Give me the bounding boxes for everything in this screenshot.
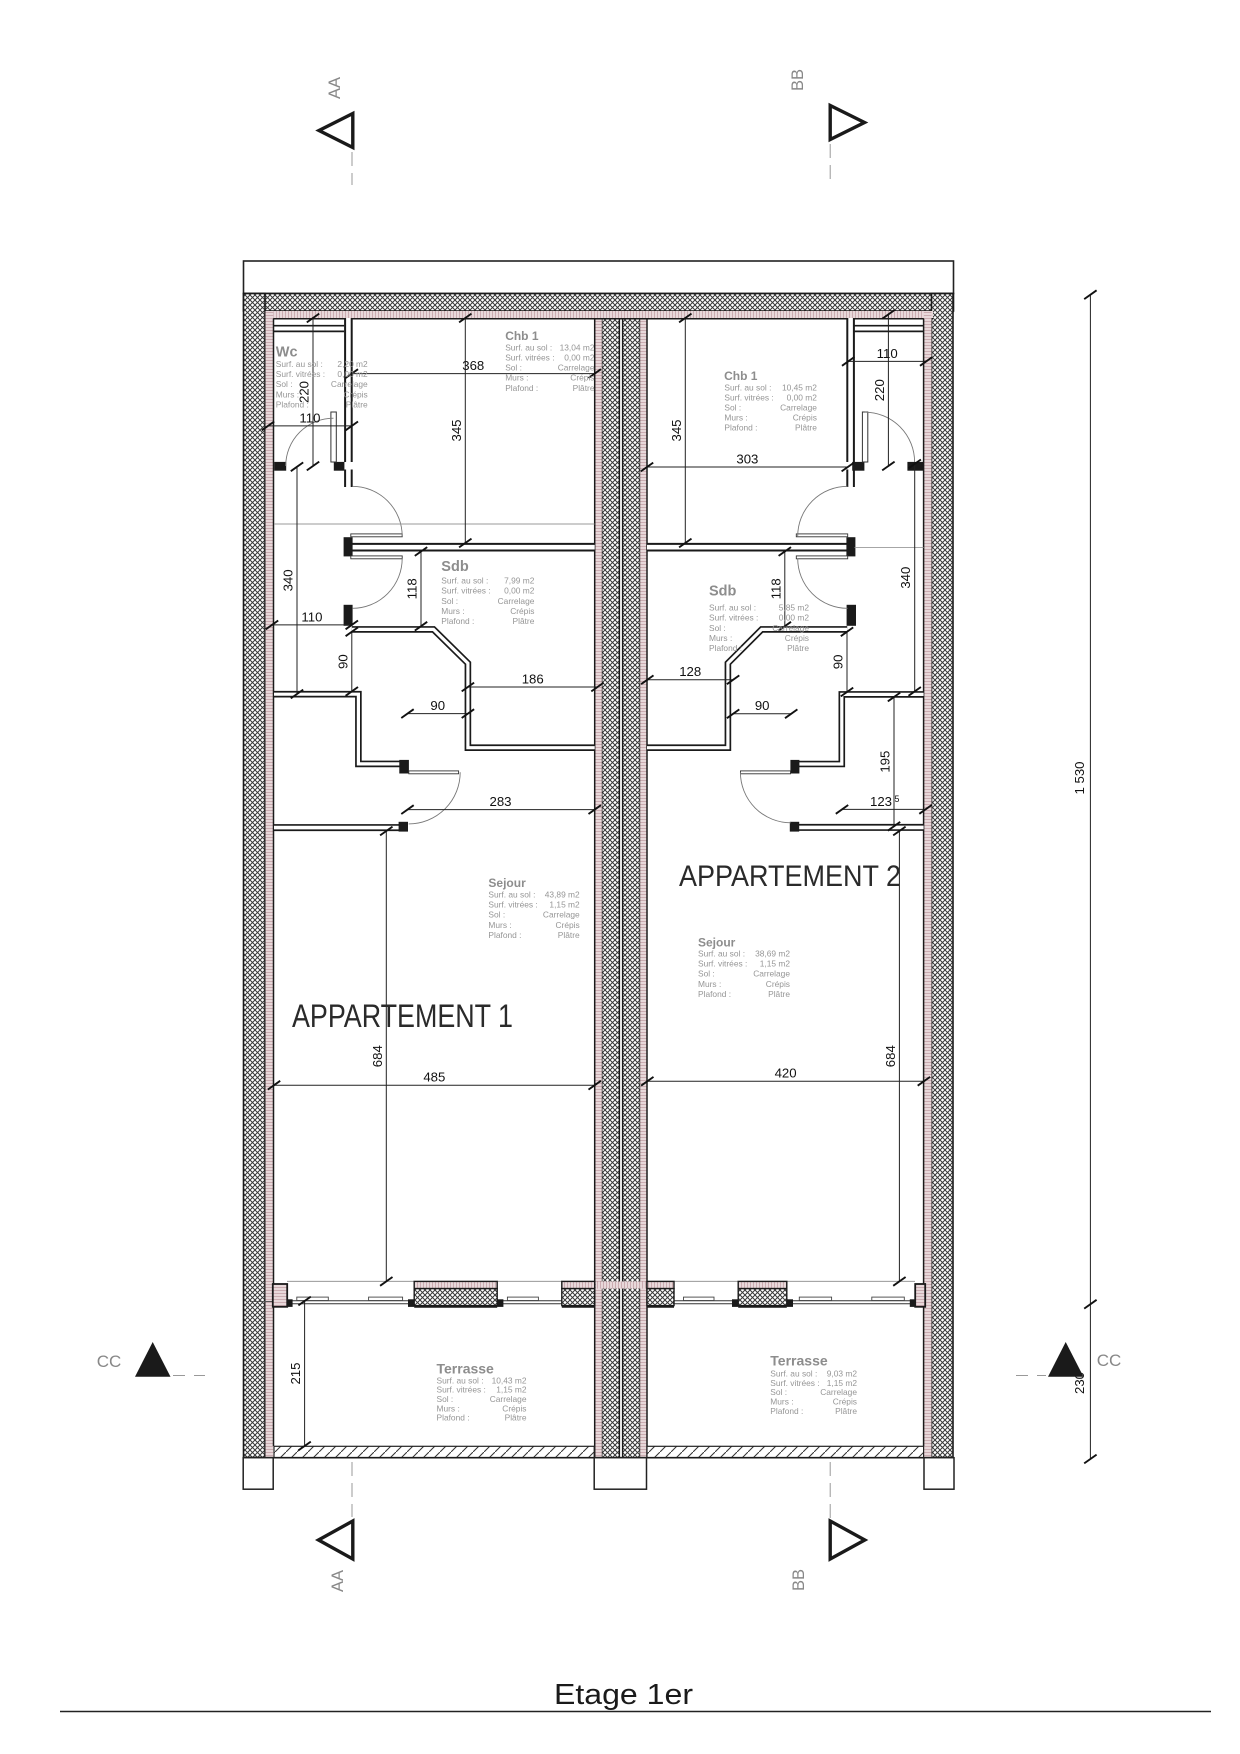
svg-text:Surf. vitrées :: Surf. vitrées : <box>698 959 747 969</box>
svg-text:1,15 m2: 1,15 m2 <box>760 959 791 969</box>
svg-text:Sol :: Sol : <box>505 363 522 373</box>
svg-text:Sejour: Sejour <box>698 935 736 949</box>
svg-text:220: 220 <box>872 379 887 401</box>
svg-text:BB: BB <box>789 69 807 91</box>
svg-text:Sol :: Sol : <box>709 623 726 633</box>
svg-text:Crépis: Crépis <box>343 389 367 399</box>
svg-text:Sol :: Sol : <box>724 402 741 412</box>
svg-text:0,00 m2: 0,00 m2 <box>337 369 368 379</box>
svg-text:0,00 m2: 0,00 m2 <box>564 352 595 362</box>
svg-text:Plâtre: Plâtre <box>558 930 580 940</box>
svg-text:Carrelage: Carrelage <box>558 363 595 373</box>
svg-text:Murs :: Murs : <box>276 389 299 399</box>
svg-text:Surf. vitrées :: Surf. vitrées : <box>488 900 537 910</box>
svg-text:110: 110 <box>299 410 320 425</box>
svg-text:110: 110 <box>301 609 322 624</box>
svg-text:118: 118 <box>405 578 420 599</box>
svg-text:Surf. vitrées :: Surf. vitrées : <box>505 352 554 362</box>
svg-text:Plâtre: Plâtre <box>787 643 809 653</box>
svg-text:BB: BB <box>790 1569 808 1591</box>
svg-text:420: 420 <box>775 1066 797 1081</box>
svg-text:283: 283 <box>489 794 511 809</box>
svg-text:Crépis: Crépis <box>766 979 790 989</box>
svg-text:90: 90 <box>831 655 846 670</box>
svg-text:Crépis: Crépis <box>793 412 817 422</box>
svg-text:186: 186 <box>522 671 544 686</box>
svg-text:AA: AA <box>326 77 344 99</box>
svg-text:Surf. au sol :: Surf. au sol : <box>488 889 535 899</box>
svg-text:90: 90 <box>335 654 350 669</box>
svg-text:Plâtre: Plâtre <box>795 422 817 432</box>
svg-text:Plafond :: Plafond : <box>724 422 757 432</box>
svg-text:Surf. au sol :: Surf. au sol : <box>709 603 756 613</box>
svg-text:118: 118 <box>768 578 783 599</box>
svg-text:Plafond :: Plafond : <box>276 400 309 410</box>
svg-text:Murs :: Murs : <box>505 373 528 383</box>
svg-text:Surf. vitrées :: Surf. vitrées : <box>276 369 325 379</box>
svg-text:Plâtre: Plâtre <box>573 383 595 393</box>
svg-text:Surf. au sol :: Surf. au sol : <box>276 359 323 369</box>
svg-text:Murs :: Murs : <box>441 606 464 616</box>
svg-text:195: 195 <box>878 751 893 773</box>
svg-text:Carrelage: Carrelage <box>780 402 817 412</box>
svg-text:Plafond :: Plafond : <box>437 1413 470 1423</box>
svg-text:AA: AA <box>329 1570 347 1592</box>
svg-text:340: 340 <box>898 567 913 589</box>
svg-text:Crépis: Crépis <box>570 373 594 383</box>
svg-text:345: 345 <box>449 419 464 441</box>
svg-text:345: 345 <box>669 419 684 441</box>
svg-text:Plafond :: Plafond : <box>770 1406 803 1416</box>
svg-text:10,45 m2: 10,45 m2 <box>782 382 817 392</box>
svg-text:485: 485 <box>423 1070 445 1085</box>
svg-text:Surf. vitrées :: Surf. vitrées : <box>709 613 758 623</box>
svg-text:Carrelage: Carrelage <box>498 596 535 606</box>
svg-text:0,00 m2: 0,00 m2 <box>779 613 810 623</box>
svg-text:Plafond :: Plafond : <box>505 383 538 393</box>
svg-text:Sdb: Sdb <box>441 559 469 575</box>
svg-text:Wc: Wc <box>276 344 298 360</box>
svg-text:Sol :: Sol : <box>488 910 505 920</box>
svg-text:Plâtre: Plâtre <box>505 1413 527 1423</box>
svg-text:0,00 m2: 0,00 m2 <box>787 392 818 402</box>
svg-text:Murs :: Murs : <box>698 979 721 989</box>
svg-text:215: 215 <box>288 1362 303 1384</box>
svg-text:Carrelage: Carrelage <box>543 910 580 920</box>
svg-text:Surf. vitrées :: Surf. vitrées : <box>724 392 773 402</box>
svg-text:Crépis: Crépis <box>510 606 534 616</box>
svg-text:Chb 1: Chb 1 <box>505 329 539 343</box>
svg-text:Surf. au sol :: Surf. au sol : <box>698 949 745 959</box>
svg-text:Carrelage: Carrelage <box>772 623 809 633</box>
svg-text:Surf. au sol :: Surf. au sol : <box>505 342 552 352</box>
svg-text:43,89 m2: 43,89 m2 <box>545 889 580 899</box>
svg-text:Carrelage: Carrelage <box>753 969 790 979</box>
svg-text:Sejour: Sejour <box>488 876 526 890</box>
svg-text:CC: CC <box>97 1352 122 1371</box>
svg-text:Murs :: Murs : <box>709 633 732 643</box>
svg-text:Chb 1: Chb 1 <box>724 369 758 383</box>
svg-text:Plâtre: Plâtre <box>513 616 535 626</box>
svg-text:Etage 1er: Etage 1er <box>554 1679 693 1711</box>
svg-text:0,00 m2: 0,00 m2 <box>504 586 535 596</box>
svg-text:Plâtre: Plâtre <box>768 989 790 999</box>
svg-text:Surf. vitrées :: Surf. vitrées : <box>441 586 490 596</box>
svg-text:Sol :: Sol : <box>441 596 458 606</box>
svg-text:90: 90 <box>430 698 445 713</box>
svg-text:110: 110 <box>877 346 898 361</box>
svg-text:APPARTEMENT 1: APPARTEMENT 1 <box>292 998 513 1034</box>
svg-text:303: 303 <box>736 451 758 466</box>
svg-text:APPARTEMENT 2: APPARTEMENT 2 <box>679 860 901 893</box>
svg-text:Terrasse: Terrasse <box>437 1361 495 1377</box>
svg-text:340: 340 <box>281 569 296 591</box>
svg-text:2,20 m2: 2,20 m2 <box>337 359 368 369</box>
svg-text:1,15 m2: 1,15 m2 <box>549 900 580 910</box>
svg-text:1 530: 1 530 <box>1072 761 1087 794</box>
svg-text:123: 123 <box>870 794 892 809</box>
svg-text:128: 128 <box>679 664 701 679</box>
svg-text:5: 5 <box>895 794 900 804</box>
svg-text:Murs :: Murs : <box>724 412 747 422</box>
svg-text:Murs :: Murs : <box>488 920 511 930</box>
svg-text:Plâtre: Plâtre <box>835 1406 857 1416</box>
svg-text:7,99 m2: 7,99 m2 <box>504 576 535 586</box>
svg-text:684: 684 <box>370 1045 385 1067</box>
svg-text:Surf. au sol :: Surf. au sol : <box>724 382 771 392</box>
svg-text:Plafond :: Plafond : <box>698 989 731 999</box>
svg-text:CC: CC <box>1097 1351 1122 1370</box>
svg-text:Crépis: Crépis <box>555 920 579 930</box>
svg-text:Plafond :: Plafond : <box>709 643 742 653</box>
svg-text:Surf. au sol :: Surf. au sol : <box>441 576 488 586</box>
svg-text:Sol :: Sol : <box>698 969 715 979</box>
svg-text:684: 684 <box>883 1045 898 1067</box>
svg-text:Sol :: Sol : <box>276 379 293 389</box>
svg-text:Sdb: Sdb <box>709 584 737 600</box>
svg-text:Plafond :: Plafond : <box>488 930 521 940</box>
svg-text:Carrelage: Carrelage <box>331 379 368 389</box>
svg-text:38,69 m2: 38,69 m2 <box>755 949 790 959</box>
svg-text:5,85 m2: 5,85 m2 <box>779 603 810 613</box>
svg-text:Crépis: Crépis <box>785 633 809 643</box>
svg-text:13,04 m2: 13,04 m2 <box>560 342 595 352</box>
svg-text:Plâtre: Plâtre <box>346 400 368 410</box>
svg-text:Plafond :: Plafond : <box>441 616 474 626</box>
svg-text:90: 90 <box>755 698 770 713</box>
svg-text:Terrasse: Terrasse <box>770 1352 828 1368</box>
